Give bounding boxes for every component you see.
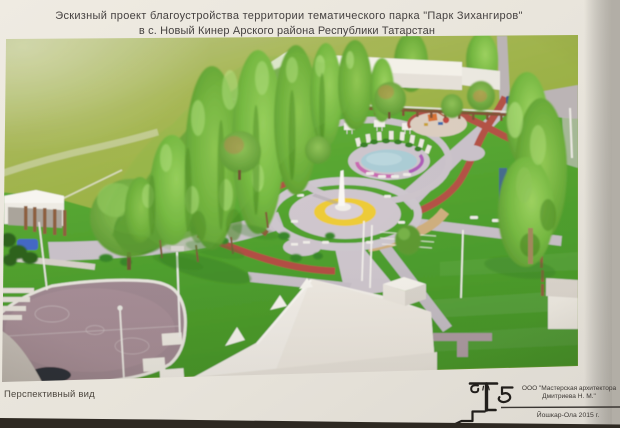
svg-text:в с. Новый Кинер Арского район: в с. Новый Кинер Арского района Республи… (139, 25, 435, 37)
svg-text:ООО "Мастерская архитектора: ООО "Мастерская архитектора (522, 385, 617, 392)
svg-text:Эскизный проект благоустройств: Эскизный проект благоустройства территор… (55, 10, 523, 22)
svg-text:Йошкар-Ола 2015 г.: Йошкар-Ола 2015 г. (537, 410, 600, 419)
svg-text:Дмитриева Н. М.": Дмитриева Н. М." (542, 393, 596, 400)
svg-text:Перспективный вид: Перспективный вид (4, 389, 95, 400)
